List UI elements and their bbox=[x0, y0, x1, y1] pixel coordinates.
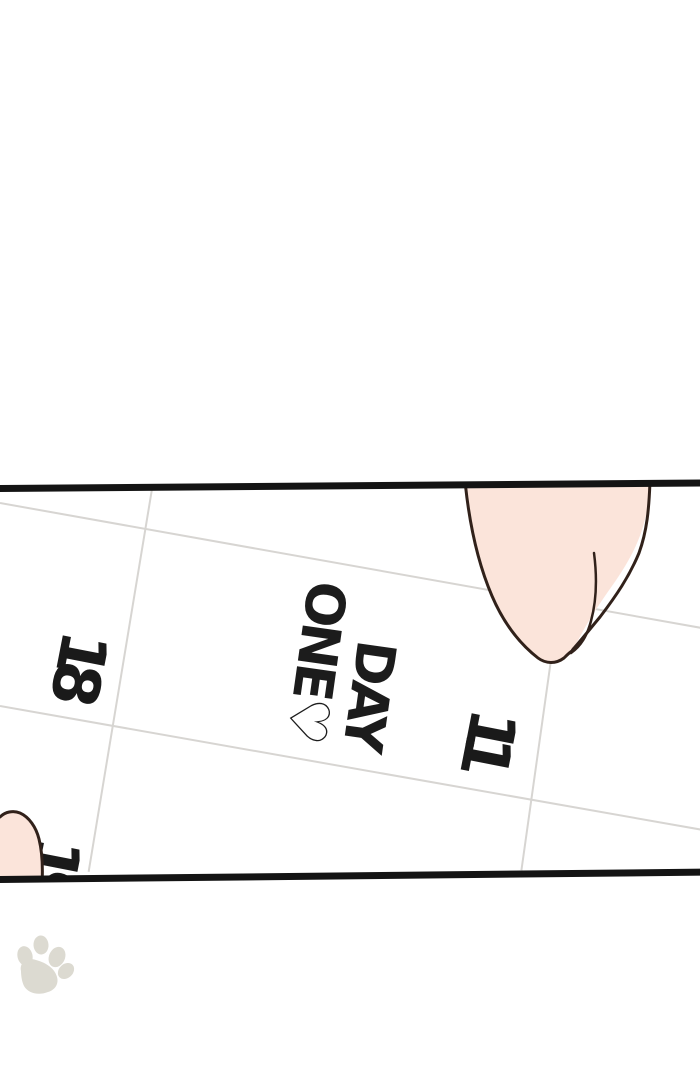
webtoon-page: 18 11 19 DAY ONE♡ bbox=[0, 0, 700, 1072]
corner-fingertip-icon bbox=[0, 800, 60, 884]
calendar-date-18: 18 bbox=[42, 626, 116, 698]
comic-panel: 18 11 19 DAY ONE♡ bbox=[0, 0, 700, 1072]
calendar-date-11: 11 bbox=[453, 704, 525, 764]
calendar-note-day-one: DAY ONE♡ bbox=[277, 578, 412, 753]
paw-print-icon bbox=[12, 930, 80, 1000]
pointing-finger-icon bbox=[440, 481, 660, 671]
